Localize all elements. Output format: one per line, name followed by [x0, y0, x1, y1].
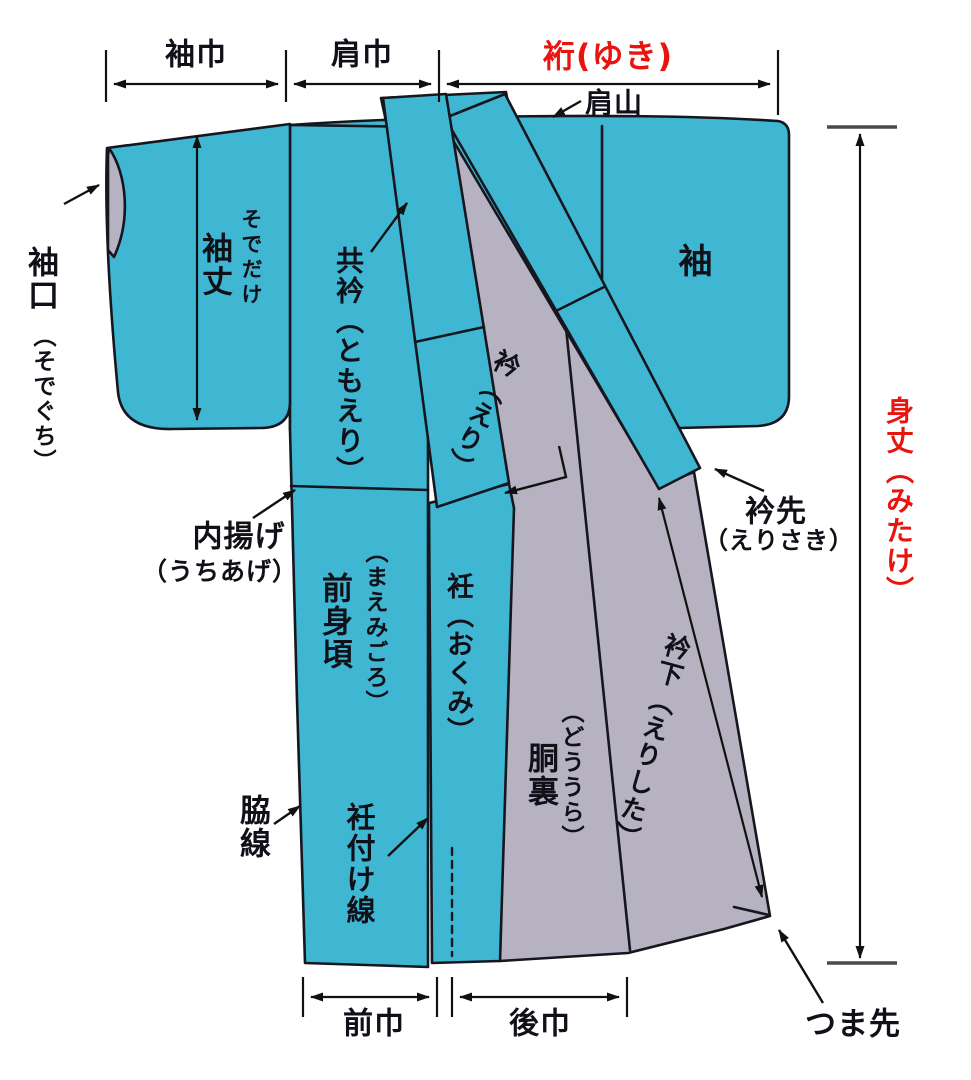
- label-sode: 袖: [679, 245, 714, 281]
- label-doura-kana: （どううら）: [558, 700, 581, 850]
- label-erisaki-kana: （えりさき）: [704, 528, 854, 553]
- label-mitake: 身丈（みたけ）: [884, 396, 912, 606]
- label-tsumasaki: つま先: [805, 1009, 901, 1042]
- label-mae-haba: 前巾: [343, 1008, 405, 1040]
- label-sodeguchi-kana: （そでぐち）: [30, 324, 53, 474]
- label-doura: 胴裏: [524, 742, 555, 808]
- arrow-tsumasaki: [779, 930, 823, 1003]
- label-okumi: 衽（おくみ）: [444, 572, 471, 746]
- label-okumitsuke: 衽付け線: [344, 802, 373, 926]
- label-ushiro-haba: 後巾: [509, 1008, 571, 1040]
- label-sodetake: 袖丈: [198, 232, 229, 298]
- label-maemigoro: 前身頃: [318, 572, 349, 671]
- kimono-diagram-page: 袖巾 肩巾 裄(ゆき) 肩山 袖口 （そでぐち） 袖丈 そでだけ 共衿（ともえり…: [0, 0, 971, 1080]
- label-sodetake-kana: そでだけ: [240, 208, 261, 308]
- arrow-katayama: [553, 101, 581, 117]
- label-kata-haba: 肩巾: [331, 39, 393, 71]
- arrow-wakisen: [274, 806, 300, 824]
- label-uchiage: 内揚げ: [193, 521, 286, 553]
- arrow-erisaki: [715, 469, 764, 491]
- label-yuki: 裄(ゆき): [543, 40, 673, 74]
- label-katayama: 肩山: [585, 88, 643, 117]
- label-uchiage-kana: （うちあげ）: [142, 559, 298, 585]
- label-erisaki: 衿先: [745, 496, 807, 528]
- label-wakisen: 脇線: [236, 794, 267, 860]
- label-sodeguchi: 袖口: [24, 246, 55, 312]
- label-maemigoro-kana: （まえみごろ）: [362, 540, 385, 715]
- arrow-sodeguchi: [64, 185, 99, 204]
- arrow-uchiage: [253, 490, 295, 518]
- label-tomoeri: 共衿（ともえり）: [334, 246, 362, 486]
- label-sode-haba: 袖巾: [165, 39, 227, 71]
